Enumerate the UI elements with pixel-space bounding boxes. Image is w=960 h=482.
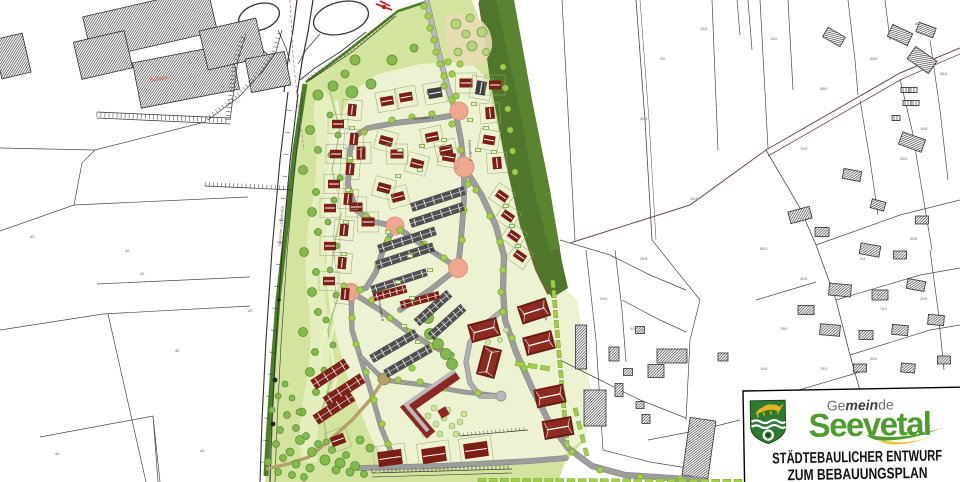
svg-text:30/0: 30/0 [870, 357, 877, 361]
svg-text:10/3: 10/3 [700, 27, 707, 31]
svg-text:0/0: 0/0 [630, 327, 635, 331]
svg-text:42: 42 [175, 348, 180, 353]
svg-text:42: 42 [30, 234, 35, 239]
svg-text:10/8: 10/8 [920, 127, 927, 131]
svg-text:50/1: 50/1 [760, 247, 767, 251]
svg-text:42: 42 [140, 271, 145, 276]
svg-text:0/0: 0/0 [660, 57, 665, 61]
svg-text:70/1: 70/1 [880, 307, 887, 311]
svg-text:42: 42 [248, 308, 253, 313]
svg-text:42: 42 [125, 248, 130, 253]
svg-text:70/0: 70/0 [780, 327, 787, 331]
svg-text:Seevetal: Seevetal [808, 405, 931, 444]
svg-text:30/6: 30/6 [910, 237, 917, 241]
svg-text:40/8: 40/8 [800, 277, 807, 281]
svg-text:20/8: 20/8 [640, 257, 647, 261]
svg-text:42: 42 [200, 448, 205, 453]
svg-text:20/6: 20/6 [920, 297, 927, 301]
svg-text:20/0: 20/0 [900, 157, 907, 161]
svg-text:20/0: 20/0 [600, 297, 607, 301]
svg-text:0/4: 0/4 [860, 257, 865, 261]
svg-text:55/3: 55/3 [940, 72, 947, 76]
svg-text:30/0: 30/0 [820, 87, 827, 91]
svg-text:10/3: 10/3 [690, 197, 697, 201]
svg-text:10/4: 10/4 [760, 367, 767, 371]
svg-text:50/0: 50/0 [870, 57, 877, 61]
svg-text:ZUM BEBAUUNGSPLAN: ZUM BEBAUUNGSPLAN [787, 465, 927, 482]
svg-text:70/1: 70/1 [820, 367, 827, 371]
svg-text:42: 42 [55, 451, 60, 456]
svg-text:10/2: 10/2 [770, 37, 777, 41]
svg-text:70/3: 70/3 [800, 147, 807, 151]
svg-text:40/3: 40/3 [640, 117, 647, 121]
